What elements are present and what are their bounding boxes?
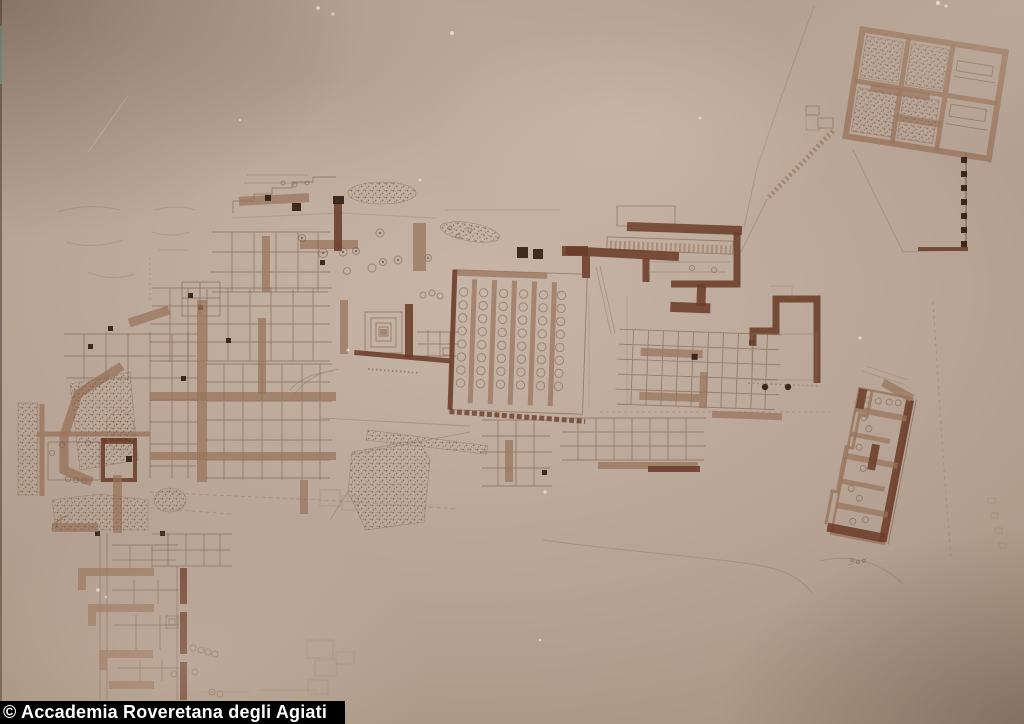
- southeast-building-plan: [824, 373, 919, 565]
- photo-edge-teal-sliver: [0, 26, 3, 84]
- sepia-photograph: © Accademia Roveretana degli Agiati: [0, 0, 1024, 724]
- north-entrance-plan: [150, 175, 501, 316]
- watermark-text: © Accademia Roveretana degli Agiati: [0, 701, 327, 724]
- watermark-bar: © Accademia Roveretana degli Agiati: [0, 701, 345, 724]
- northeast-walls: [517, 206, 742, 284]
- site-plan-drawing: [0, 0, 1024, 724]
- south-rubble-terrace: [320, 418, 488, 530]
- southwest-corridor: [52, 494, 318, 700]
- west-magazines: [447, 270, 590, 422]
- photo-of-site-plan: © Accademia Roveretana degli Agiati: [0, 0, 1024, 724]
- northeast-villa-plan: [806, 29, 1006, 252]
- south-wall-hook: [748, 286, 820, 390]
- east-wing-rooms: [480, 281, 783, 486]
- photo-left-edge: [0, 0, 2, 724]
